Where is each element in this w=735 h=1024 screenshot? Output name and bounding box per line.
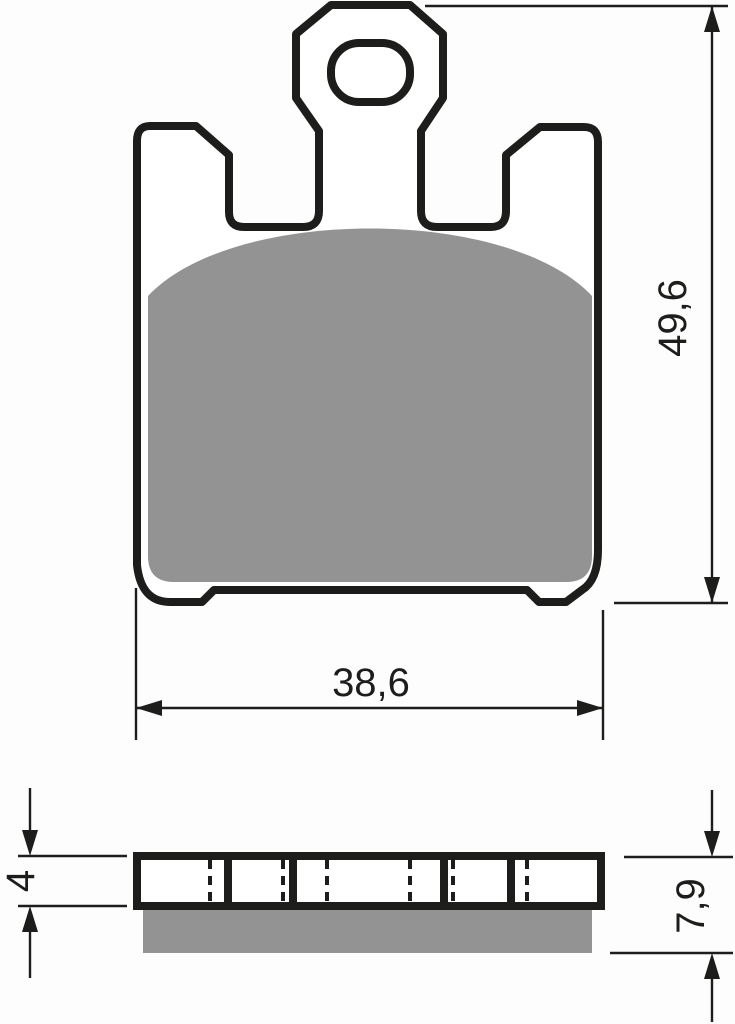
- backplate-thickness-label: 4: [0, 870, 43, 892]
- front-view: [137, 5, 598, 602]
- side-view: [137, 856, 601, 953]
- total-thickness-label: 7,9: [669, 878, 713, 934]
- backplate-side: [137, 856, 601, 906]
- dimension-arrow-icon: [22, 906, 38, 932]
- dimension-arrow-icon: [22, 830, 38, 856]
- brake-pad-drawing: 49,6 38,6: [0, 0, 735, 1024]
- drawing-canvas: 49,6 38,6: [0, 0, 735, 1024]
- dimension-arrow-icon: [704, 831, 720, 857]
- dimension-arrow-icon: [136, 700, 162, 716]
- friction-material-side: [143, 908, 592, 953]
- height-dimension-label: 49,6: [651, 279, 695, 357]
- dimension-arrow-icon: [704, 577, 720, 603]
- friction-material-front: [148, 229, 592, 583]
- mounting-tab-hole: [331, 43, 410, 102]
- dimension-arrow-icon: [704, 6, 720, 32]
- dimension-arrow-icon: [577, 700, 603, 716]
- dimension-arrow-icon: [704, 953, 720, 979]
- width-dimension-label: 38,6: [332, 661, 410, 705]
